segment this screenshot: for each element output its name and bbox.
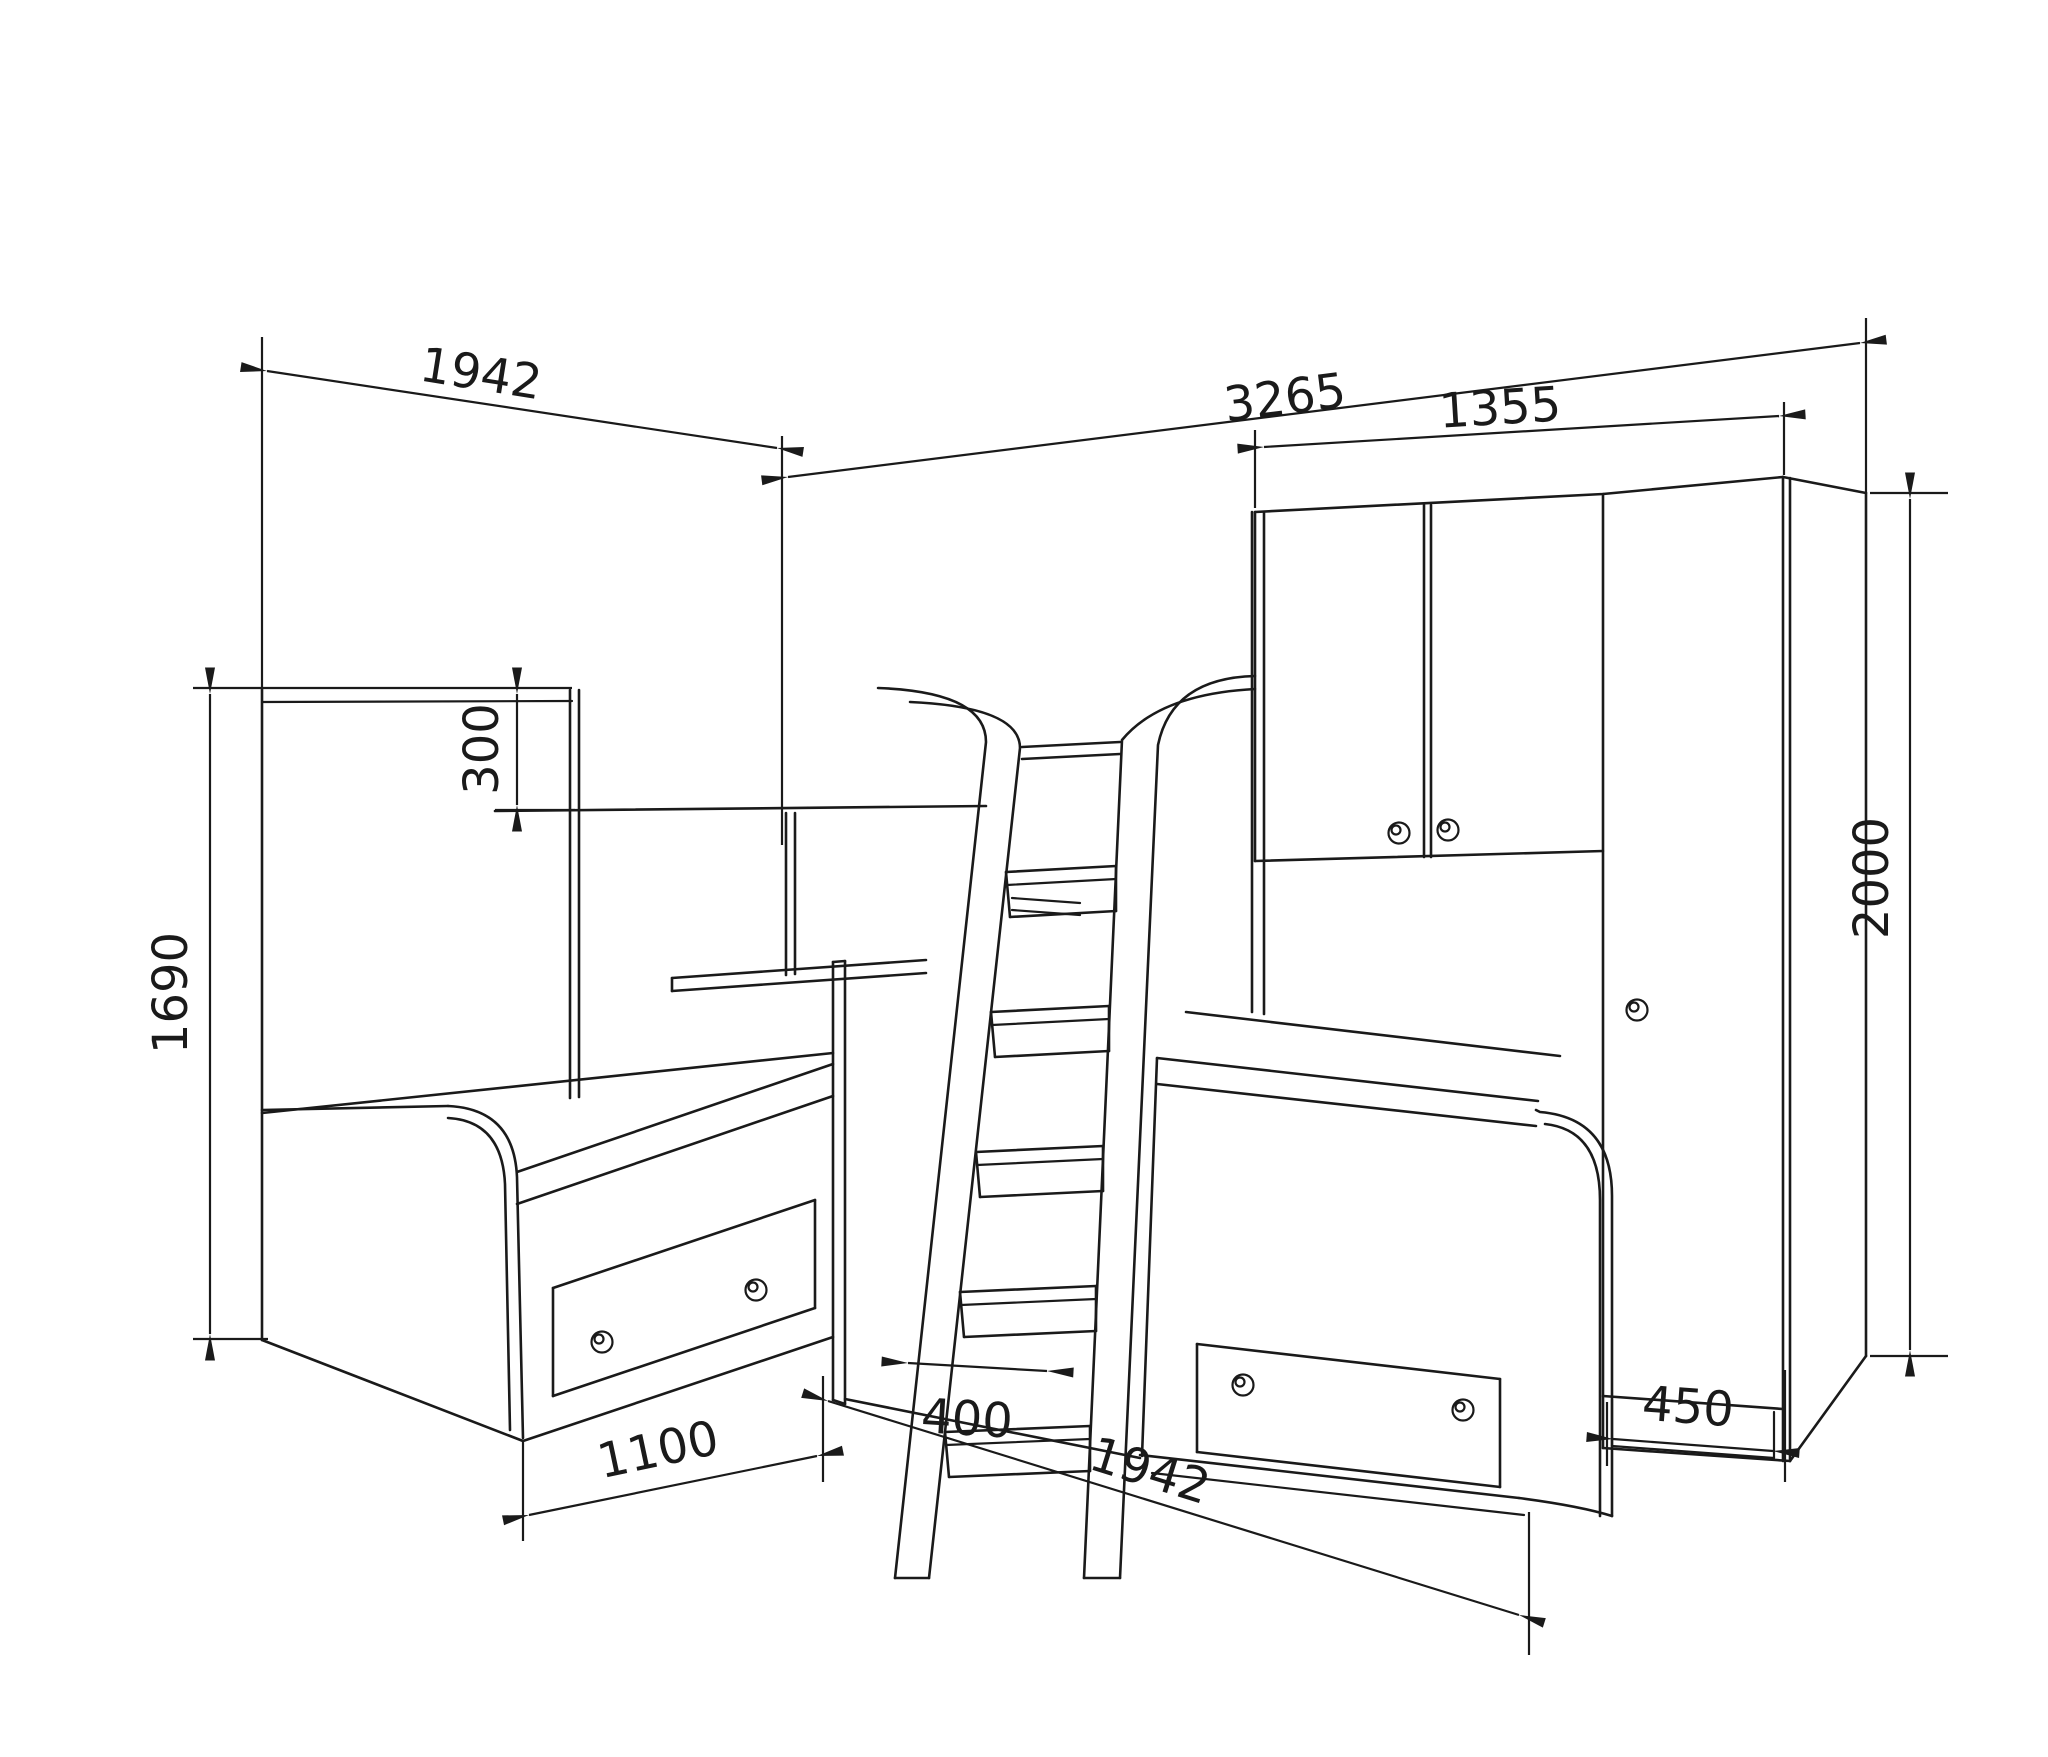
dimension-line	[828, 1401, 1519, 1615]
drawer-knob	[1233, 1375, 1254, 1396]
dim-label-wardrobe-height: 2000	[1844, 817, 1900, 939]
cabinet-knob	[1389, 823, 1410, 844]
left-bed	[262, 688, 833, 1441]
rail-back-top	[1022, 742, 1120, 747]
drawer-knob	[592, 1332, 613, 1353]
furniture-drawing-page: 1942 3265 1355 1690 300	[0, 0, 2048, 1757]
bed-left-end	[1142, 1058, 1157, 1456]
dim-label-cabinet-width: 1355	[1437, 376, 1562, 439]
mid-shelf	[1012, 898, 1080, 903]
rail-bottom-edge	[495, 806, 986, 811]
headboard-top-edge	[262, 1106, 448, 1110]
dim-label-left-bed-length: 1942	[416, 337, 545, 411]
wardrobe-knob	[1627, 1000, 1648, 1021]
bed-back-top-edge	[262, 1053, 833, 1113]
cabinet-bottom-edge	[1255, 851, 1603, 861]
side-mattress-line	[517, 1096, 833, 1204]
drawer-knob	[1453, 1400, 1474, 1421]
rail-back-bottom	[1022, 754, 1120, 759]
wardrobe	[1603, 477, 1866, 1461]
cabinet-knob	[1438, 820, 1459, 841]
dimension-line	[908, 1363, 1047, 1371]
dim-total-width: 3265	[788, 318, 1866, 493]
loft-bed-rail	[495, 742, 1120, 811]
ladder-step	[960, 1286, 1096, 1337]
dim-ladder-width: 400	[908, 1363, 1047, 1450]
headboard-corner-outer	[448, 1106, 523, 1438]
plinth-line	[1152, 1473, 1524, 1515]
dim-left-bed-width: 1100	[523, 1376, 823, 1541]
front-rail-top	[1157, 1058, 1538, 1101]
overhead-cabinet	[1252, 477, 1783, 1014]
dim-wardrobe-height: 2000	[1844, 493, 1948, 1356]
headboard-bottom-edge	[262, 1340, 523, 1441]
ladder-step	[1006, 866, 1116, 917]
foot-bottom-corner	[1519, 1498, 1612, 1516]
wardrobe-plinth	[1612, 1446, 1774, 1458]
dim-wardrobe-depth: 450	[1607, 1370, 1785, 1482]
dim-label-total-width: 3265	[1221, 363, 1349, 434]
dim-label-bunk-rail-height: 300	[454, 703, 510, 795]
back-panel-top-edge	[262, 701, 572, 702]
footboard-corner-inner	[1545, 1124, 1600, 1516]
furniture	[262, 477, 1866, 1578]
cabinet-top-edge	[1255, 477, 1783, 512]
dim-label-left-height: 1690	[143, 932, 199, 1054]
wardrobe-bottom-side-edge	[1790, 1356, 1866, 1461]
ladder-step	[991, 1006, 1109, 1057]
drawer-knob	[746, 1280, 767, 1301]
dim-left-bed-length: 1942	[262, 337, 782, 845]
dim-label-ladder-width: 400	[920, 1388, 1015, 1449]
dim-label-wardrobe-depth: 450	[1640, 1376, 1736, 1439]
dim-bunk-rail-height: 300	[454, 694, 575, 810]
ladder-step	[976, 1146, 1103, 1197]
wardrobe-top-side-edge	[1783, 477, 1866, 493]
bed-back-rail	[1186, 1012, 1560, 1056]
left-bed-drawer	[553, 1200, 815, 1396]
furniture-dimension-drawing: 1942 3265 1355 1690 300	[0, 0, 2048, 1757]
front-mattress-line	[1157, 1084, 1536, 1126]
headboard-corner-inner	[448, 1118, 510, 1430]
right-bed	[1140, 1012, 1612, 1516]
desk-shelf	[672, 813, 1080, 1404]
